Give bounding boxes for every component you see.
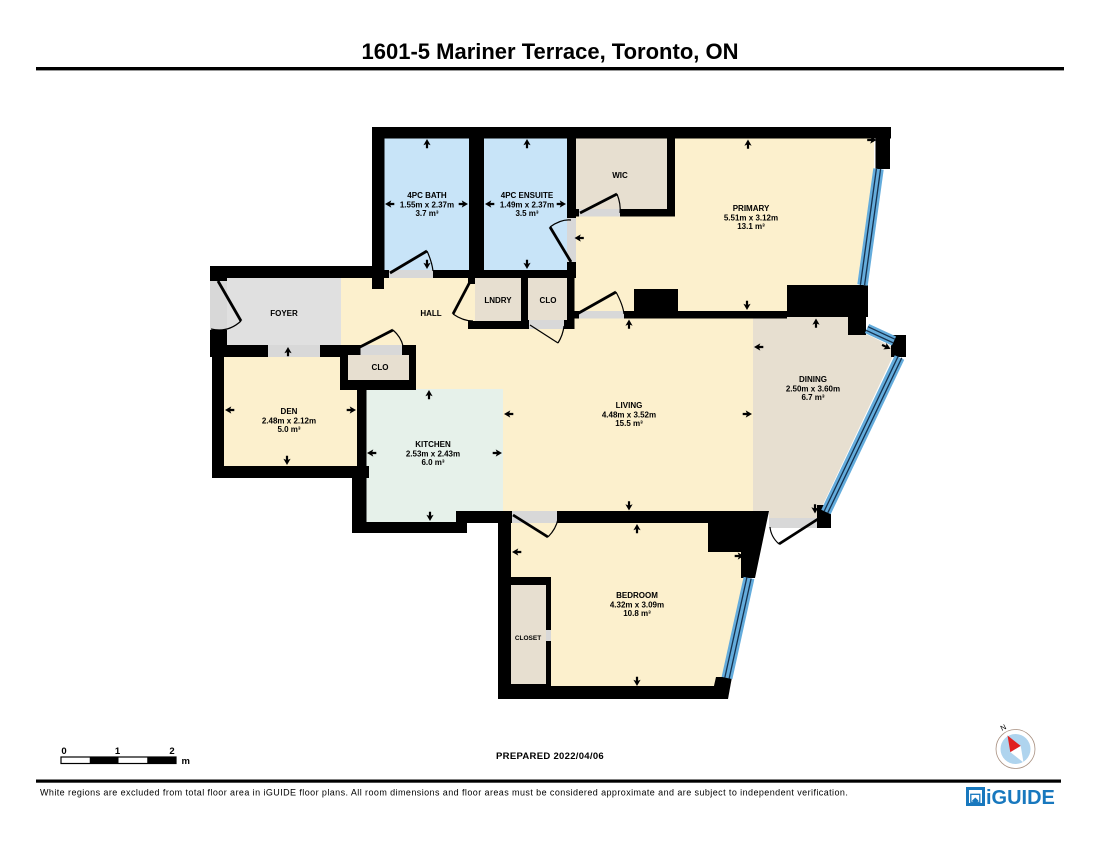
svg-text:6.7 m³: 6.7 m³ bbox=[801, 393, 824, 402]
svg-text:15.5 m³: 15.5 m³ bbox=[615, 419, 643, 428]
svg-text:13.1 m³: 13.1 m³ bbox=[737, 222, 765, 231]
svg-text:5.0 m³: 5.0 m³ bbox=[277, 425, 300, 434]
svg-text:4PC BATH: 4PC BATH bbox=[407, 191, 447, 200]
svg-text:CLOSET: CLOSET bbox=[515, 635, 541, 642]
svg-text:CLO: CLO bbox=[540, 296, 557, 305]
svg-text:6.0 m³: 6.0 m³ bbox=[421, 458, 444, 467]
svg-text:3.5 m³: 3.5 m³ bbox=[515, 209, 538, 218]
svg-text:White regions are excluded fro: White regions are excluded from total fl… bbox=[40, 788, 848, 798]
svg-text:LNDRY: LNDRY bbox=[484, 296, 512, 305]
svg-text:PRIMARY: PRIMARY bbox=[733, 204, 770, 213]
svg-text:FOYER: FOYER bbox=[270, 309, 298, 318]
svg-text:3.7 m³: 3.7 m³ bbox=[415, 209, 438, 218]
svg-text:WIC: WIC bbox=[612, 171, 628, 180]
svg-text:4PC ENSUITE: 4PC ENSUITE bbox=[501, 191, 554, 200]
svg-text:CLO: CLO bbox=[372, 363, 389, 372]
svg-text:LIVING: LIVING bbox=[616, 401, 643, 410]
svg-text:m: m bbox=[182, 756, 190, 767]
svg-text:1: 1 bbox=[115, 746, 121, 757]
svg-text:iGUIDE: iGUIDE bbox=[986, 787, 1055, 809]
svg-text:HALL: HALL bbox=[420, 309, 441, 318]
svg-text:DEN: DEN bbox=[281, 407, 298, 416]
svg-text:KITCHEN: KITCHEN bbox=[415, 440, 451, 449]
svg-text:0: 0 bbox=[61, 746, 66, 757]
svg-text:10.8 m³: 10.8 m³ bbox=[623, 609, 651, 618]
svg-text:BEDROOM: BEDROOM bbox=[616, 591, 658, 600]
svg-text:1601-5 Mariner Terrace, Toront: 1601-5 Mariner Terrace, Toronto, ON bbox=[362, 39, 739, 64]
svg-text:2: 2 bbox=[169, 746, 174, 757]
svg-text:DINING: DINING bbox=[799, 375, 827, 384]
svg-text:PREPARED 2022/04/06: PREPARED 2022/04/06 bbox=[496, 751, 604, 762]
